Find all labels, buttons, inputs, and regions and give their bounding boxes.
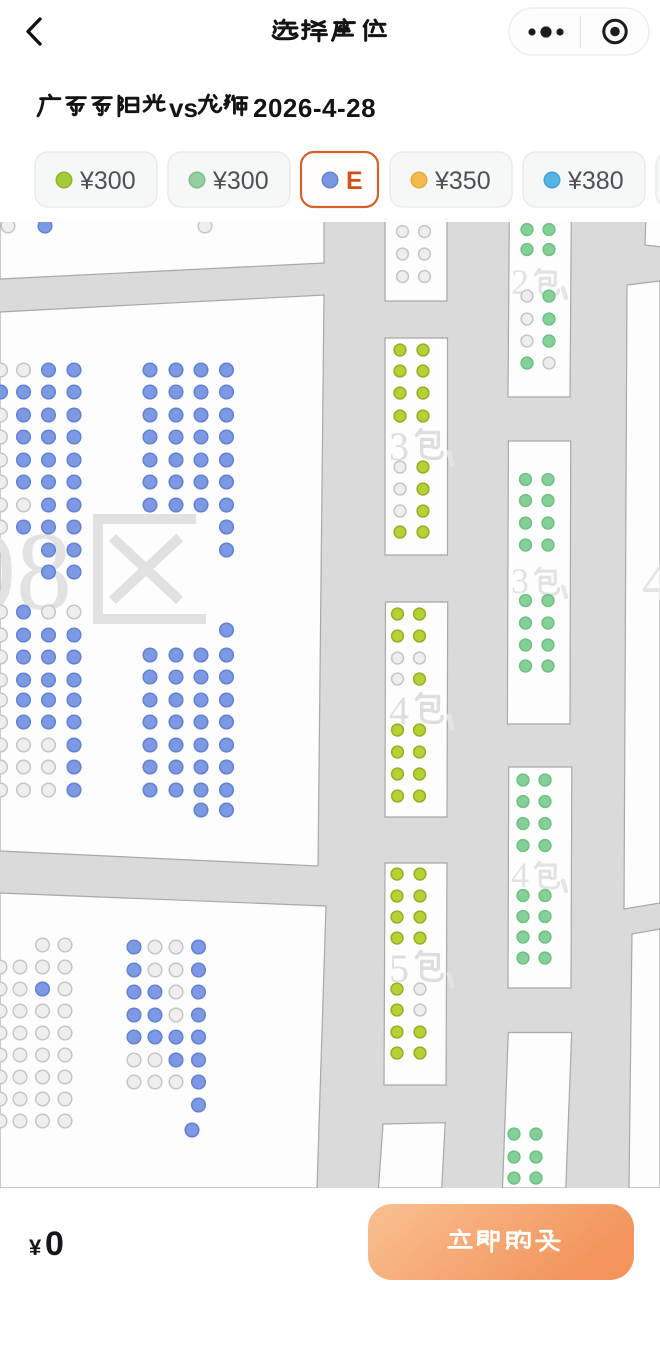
svg-text:0: 0 — [45, 1225, 64, 1263]
svg-text:08: 08 — [0, 510, 72, 634]
svg-text:¥300: ¥300 — [212, 167, 269, 195]
svg-text:¥300: ¥300 — [79, 167, 136, 195]
svg-text:E: E — [346, 167, 363, 195]
svg-text:¥380: ¥380 — [567, 167, 624, 195]
svg-text:4: 4 — [642, 551, 660, 613]
svg-text:vs: vs — [169, 93, 198, 123]
svg-text:¥: ¥ — [29, 1235, 42, 1260]
svg-text:¥350: ¥350 — [434, 167, 491, 195]
svg-text:4: 4 — [511, 855, 529, 895]
svg-text:2026-4-28: 2026-4-28 — [253, 93, 376, 123]
